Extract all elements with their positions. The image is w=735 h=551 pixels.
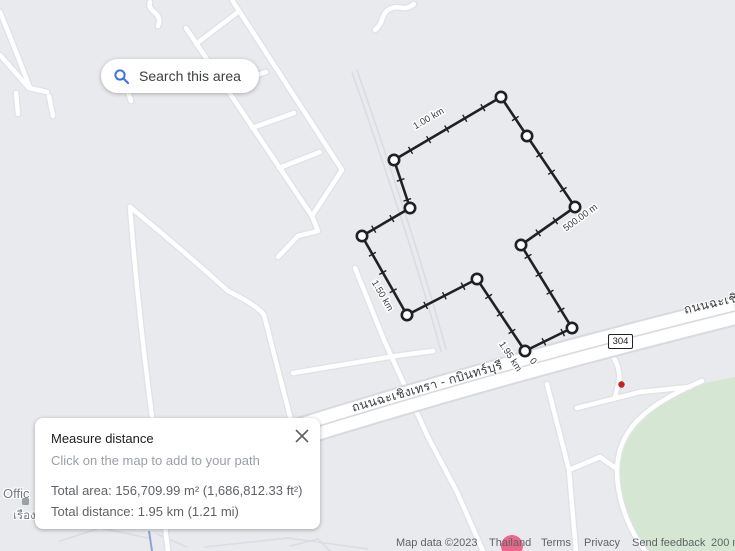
measure-vertex[interactable] (520, 346, 530, 356)
measure-distance-panel: Measure distance Click on the map to add… (35, 418, 320, 529)
measure-vertex[interactable] (496, 92, 506, 102)
measure-vertex[interactable] (567, 323, 577, 333)
measure-vertex[interactable] (389, 155, 399, 165)
panel-title: Measure distance (51, 431, 304, 446)
search-this-area-button[interactable]: Search this area (101, 59, 259, 93)
scale-label[interactable]: 200 m (711, 537, 735, 549)
total-distance-text: Total distance: 1.95 km (1.21 mi) (51, 504, 304, 519)
poi-label-thai: เรือง (13, 507, 36, 525)
search-button-label: Search this area (139, 68, 241, 84)
search-icon (113, 68, 130, 85)
privacy-link[interactable]: Privacy (584, 537, 620, 549)
terms-link[interactable]: Terms (541, 537, 571, 549)
measure-vertex[interactable] (570, 202, 580, 212)
close-icon[interactable] (293, 427, 311, 445)
route-304-badge: 304 (608, 334, 633, 349)
measure-vertex[interactable] (405, 203, 415, 213)
measure-vertex[interactable] (402, 310, 412, 320)
map-data-copyright: Map data ©2023 (396, 537, 478, 549)
total-area-text: Total area: 156,709.99 m² (1,686,812.33 … (51, 483, 304, 498)
poi-building-icon (22, 498, 29, 505)
measure-vertex[interactable] (357, 231, 367, 241)
map-canvas[interactable]: 01.95 km500.00 m1.00 km1.50 km ถนนฉะเชิง… (0, 0, 735, 551)
attribution-region: Thailand (489, 537, 531, 549)
poi-red-dot[interactable] (618, 381, 624, 387)
panel-subtitle: Click on the map to add to your path (51, 453, 304, 468)
measure-vertex[interactable] (516, 240, 526, 250)
send-feedback-link[interactable]: Send feedback (632, 537, 705, 549)
measure-vertex[interactable] (472, 274, 482, 284)
measure-vertex[interactable] (522, 131, 532, 141)
